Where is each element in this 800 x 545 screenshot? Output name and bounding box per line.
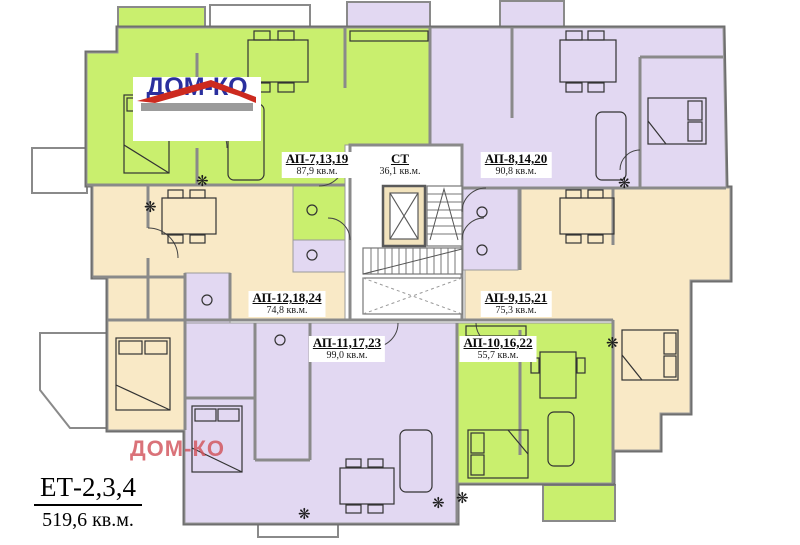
apartment-label-ap8: АП-8,14,20 90,8 кв.м.	[481, 152, 552, 178]
watermark-text: ДОМ-КО	[130, 436, 225, 462]
svg-text:❋: ❋	[144, 198, 157, 216]
apartment-area: 90,8 кв.м.	[485, 167, 548, 178]
floor-area: 519,6 кв.м.	[34, 509, 142, 532]
apartment-label-ap9: АП-9,15,21 75,3 кв.м.	[481, 291, 552, 317]
apartment-name: АП-9,15,21	[485, 291, 548, 305]
apartment-name: АП-10,16,22	[463, 336, 532, 350]
floor-title-block: ЕТ-2,3,4 519,6 кв.м.	[34, 472, 142, 532]
apartment-area: 75,3 кв.м.	[485, 306, 548, 317]
apartment-area: 74,8 кв.м.	[252, 306, 321, 317]
floor-plan: ❋ ❋ ❋ ❋ ❋ ❋ ❋ ДОМ-КО ДОМ-КО АП-7,13,19 8…	[0, 0, 800, 545]
apartment-name: АП-8,14,20	[485, 152, 548, 166]
apartment-area: 36,1 кв.м.	[380, 167, 421, 178]
apartment-label-st: СТ 36,1 кв.м.	[376, 152, 425, 178]
floor-title: ЕТ-2,3,4	[34, 472, 142, 506]
svg-text:❋: ❋	[432, 494, 445, 512]
room-ap8-bath	[460, 188, 518, 270]
apartment-name: СТ	[380, 152, 421, 166]
floorplan-canvas: ❋ ❋ ❋ ❋ ❋ ❋ ❋	[0, 0, 800, 545]
apartment-area: 99,0 кв.м.	[313, 351, 381, 362]
svg-text:❋: ❋	[456, 489, 469, 507]
apartment-label-ap11: АП-11,17,23 99,0 кв.м.	[309, 336, 385, 362]
apartment-label-ap12: АП-12,18,24 74,8 кв.м.	[248, 291, 325, 317]
room-ap7-bath	[293, 185, 345, 240]
room-center-bath	[293, 240, 345, 272]
svg-text:❋: ❋	[618, 174, 631, 192]
logo-tagline-bar	[141, 103, 253, 111]
stair-landing	[363, 278, 462, 314]
apartment-label-ap7: АП-7,13,19 87,9 кв.м.	[282, 152, 353, 178]
apartment-area: 87,9 кв.м.	[286, 167, 349, 178]
svg-text:❋: ❋	[298, 505, 311, 523]
apartment-label-ap10: АП-10,16,22 55,7 кв.м.	[459, 336, 536, 362]
apartment-name: АП-7,13,19	[286, 152, 349, 166]
apartment-name: АП-12,18,24	[252, 291, 321, 305]
room-ap8	[430, 28, 726, 188]
room-ap11-baths	[185, 273, 230, 323]
apartment-area: 55,7 кв.м.	[463, 351, 532, 362]
logo: ДОМ-КО	[133, 77, 261, 141]
apartment-name: АП-11,17,23	[313, 336, 381, 350]
logo-roof-icon	[133, 77, 261, 103]
svg-text:❋: ❋	[606, 334, 619, 352]
svg-text:❋: ❋	[196, 172, 209, 190]
